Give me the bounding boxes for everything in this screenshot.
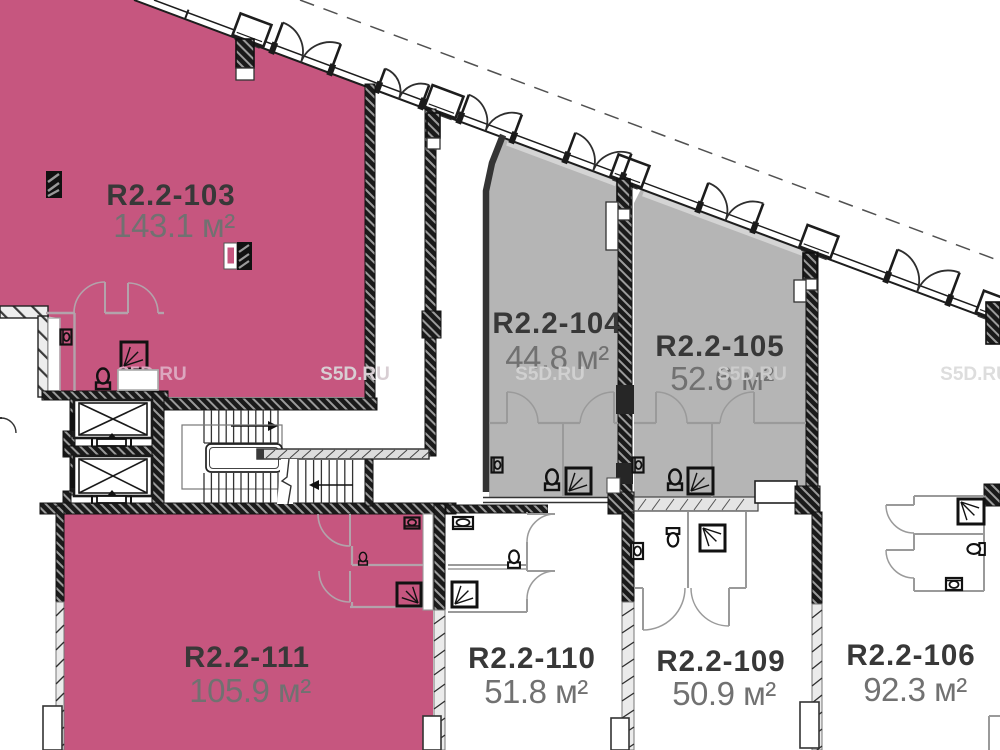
svg-text:R2.2-110: R2.2-110 xyxy=(468,642,596,675)
svg-text:105.9 м²: 105.9 м² xyxy=(189,672,311,709)
svg-text:R2.2-104: R2.2-104 xyxy=(492,307,621,340)
svg-text:143.1 м²: 143.1 м² xyxy=(113,207,235,244)
svg-text:50.9 м²: 50.9 м² xyxy=(672,675,776,712)
svg-text:S5D.RU: S5D.RU xyxy=(515,364,585,385)
svg-text:S5D.RU: S5D.RU xyxy=(940,364,1000,385)
svg-text:S5D.RU: S5D.RU xyxy=(320,364,390,385)
svg-text:R2.2-111: R2.2-111 xyxy=(184,641,310,674)
svg-text:S5D.RU: S5D.RU xyxy=(717,364,787,385)
svg-text:51.8 м²: 51.8 м² xyxy=(484,673,588,710)
svg-text:R2.2-109: R2.2-109 xyxy=(656,645,785,678)
svg-text:R2.2-105: R2.2-105 xyxy=(655,330,784,363)
svg-text:R2.2-106: R2.2-106 xyxy=(846,639,975,672)
svg-text:92.3 м²: 92.3 м² xyxy=(863,671,967,708)
